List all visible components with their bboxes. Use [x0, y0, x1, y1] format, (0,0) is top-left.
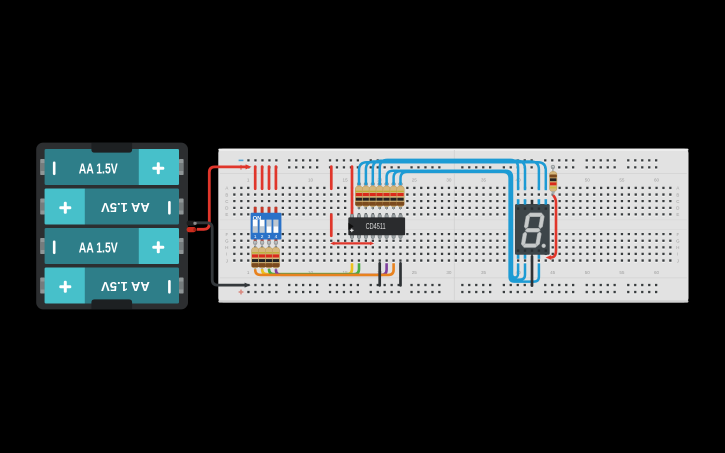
svg-text:CD4511: CD4511: [366, 221, 386, 231]
svg-text:C: C: [225, 199, 228, 204]
svg-text:35: 35: [481, 178, 487, 183]
svg-text:A: A: [676, 186, 679, 191]
svg-text:G: G: [676, 239, 680, 244]
svg-text:E: E: [225, 212, 228, 217]
svg-text:G: G: [225, 239, 229, 244]
svg-text:AA 1.5V: AA 1.5V: [79, 241, 118, 257]
svg-text:25: 25: [412, 178, 418, 183]
svg-text:A: A: [225, 186, 228, 191]
svg-text:1: 1: [254, 234, 257, 240]
svg-text:D: D: [225, 206, 228, 211]
svg-text:55: 55: [619, 178, 625, 183]
svg-text:B: B: [676, 192, 679, 197]
svg-text:H: H: [676, 245, 679, 250]
svg-text:C: C: [676, 199, 679, 204]
svg-text:45: 45: [550, 270, 556, 275]
svg-text:50: 50: [585, 178, 591, 183]
svg-text:15: 15: [343, 178, 349, 183]
svg-text:30: 30: [446, 178, 452, 183]
svg-text:4: 4: [275, 234, 278, 240]
svg-text:35: 35: [481, 270, 487, 275]
svg-text:F: F: [225, 232, 228, 237]
svg-text:I: I: [677, 252, 678, 257]
svg-text:AA 1.5V: AA 1.5V: [101, 279, 150, 294]
svg-text:55: 55: [619, 270, 625, 275]
svg-text:AA 1.5V: AA 1.5V: [79, 162, 118, 178]
svg-text:1: 1: [247, 178, 250, 183]
svg-text:AA 1.5V: AA 1.5V: [101, 200, 150, 215]
svg-text:I: I: [226, 252, 227, 257]
svg-text:D: D: [676, 206, 679, 211]
svg-text:10: 10: [308, 178, 314, 183]
svg-text:E: E: [676, 212, 679, 217]
svg-text:50: 50: [585, 270, 591, 275]
svg-text:25: 25: [412, 270, 418, 275]
svg-text:B: B: [225, 192, 228, 197]
svg-text:60: 60: [654, 178, 660, 183]
svg-text:30: 30: [446, 270, 452, 275]
svg-text:H: H: [225, 245, 228, 250]
svg-text:2: 2: [261, 234, 264, 240]
svg-text:J: J: [677, 258, 679, 263]
svg-text:3: 3: [268, 234, 271, 240]
svg-text:F: F: [676, 232, 679, 237]
svg-text:J: J: [226, 258, 228, 263]
svg-text:60: 60: [654, 270, 660, 275]
svg-text:1: 1: [247, 270, 250, 275]
